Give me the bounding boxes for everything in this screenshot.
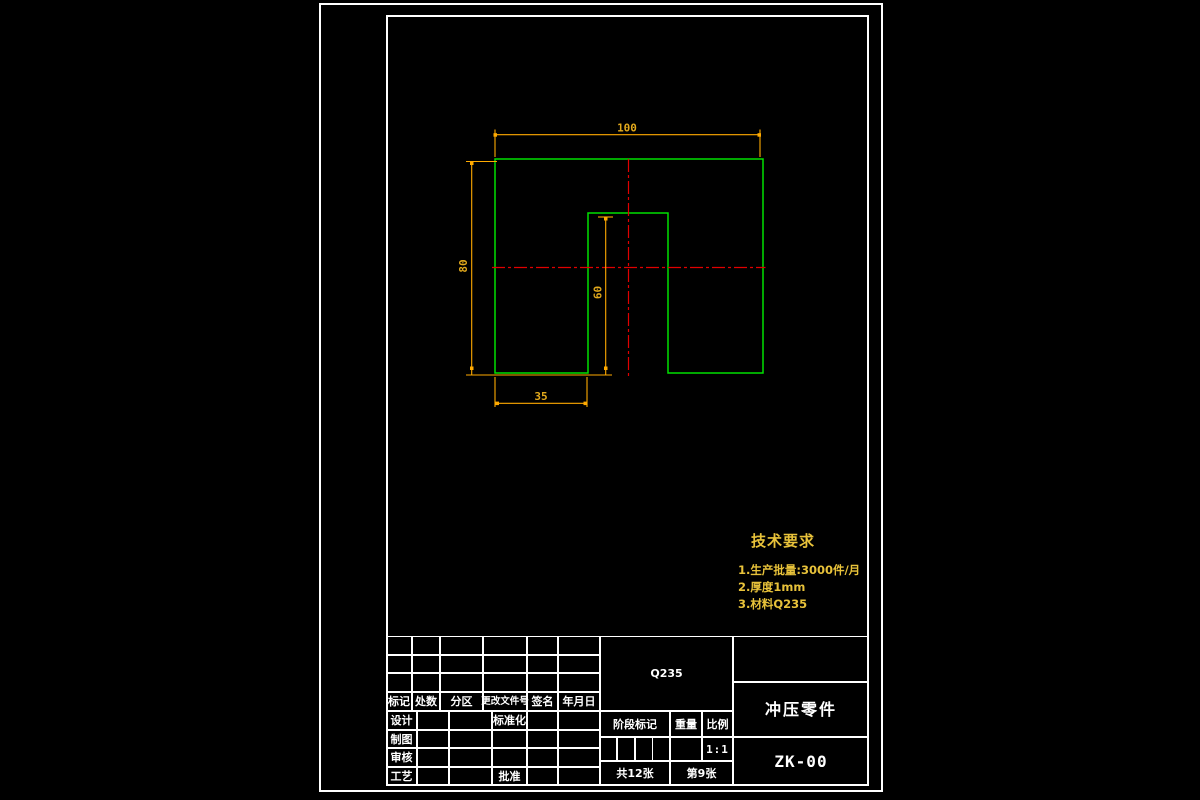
technical-requirements-title: 技术要求 bbox=[751, 530, 815, 551]
signature-cell bbox=[558, 767, 600, 786]
signature-cell bbox=[527, 767, 558, 786]
scale-value-cell: 1:1 bbox=[702, 737, 733, 761]
stage-mark-sub-cell bbox=[635, 737, 653, 761]
signature-cell bbox=[449, 767, 492, 786]
revision-cell bbox=[558, 655, 600, 673]
signature-cell bbox=[558, 730, 600, 748]
label-cell: 审核 bbox=[386, 748, 417, 767]
signature-cell bbox=[417, 711, 449, 730]
dim-label-overall-height: 80 bbox=[457, 259, 470, 272]
revision-cell bbox=[440, 655, 483, 673]
signature-cell bbox=[492, 748, 527, 767]
scale-cell: 比例 bbox=[702, 711, 733, 737]
signature-cell bbox=[449, 748, 492, 767]
revision-cell bbox=[412, 655, 440, 673]
signature-cell bbox=[527, 711, 558, 730]
signature-cell bbox=[417, 730, 449, 748]
signature-cell bbox=[527, 730, 558, 748]
signature-cell bbox=[492, 730, 527, 748]
revision-cell bbox=[412, 636, 440, 655]
label-cell: 批准 bbox=[492, 767, 527, 786]
signature-cell bbox=[449, 711, 492, 730]
revision-cell bbox=[558, 636, 600, 655]
dim-label-notch-offset: 35 bbox=[534, 390, 547, 403]
label-cell: 工艺 bbox=[386, 767, 417, 786]
revision-cell bbox=[386, 655, 412, 673]
revision-cell bbox=[483, 636, 527, 655]
revision-cell bbox=[386, 636, 412, 655]
cad-drawing-canvas: 100 80 60 35 技术要求 1.生产批量:3000件/月 2.厚度1mm… bbox=[0, 0, 1200, 800]
dim-label-notch-height: 60 bbox=[592, 286, 605, 299]
stage-mark-cell: 阶段标记 bbox=[600, 711, 670, 737]
header-cell: 更改文件号 bbox=[483, 692, 527, 711]
material-cell: Q235 bbox=[600, 636, 733, 711]
signature-cell bbox=[558, 711, 600, 730]
stage-mark-sub-cell bbox=[617, 737, 635, 761]
header-cell: 处数 bbox=[412, 692, 440, 711]
revision-cell bbox=[558, 673, 600, 692]
header-cell: 签名 bbox=[527, 692, 558, 711]
revision-cell bbox=[527, 636, 558, 655]
signature-cell bbox=[417, 748, 449, 767]
header-cell: 年月日 bbox=[558, 692, 600, 711]
sheets-total-cell: 共12张 bbox=[600, 761, 670, 786]
label-cell: 制图 bbox=[386, 730, 417, 748]
dim-label-overall-width: 100 bbox=[617, 122, 637, 135]
revision-cell bbox=[440, 673, 483, 692]
revision-cell bbox=[483, 655, 527, 673]
header-cell: 分区 bbox=[440, 692, 483, 711]
header-cell: 标记 bbox=[386, 692, 412, 711]
tech-requirement-item: 3.材料Q235 bbox=[738, 596, 860, 613]
signature-cell bbox=[449, 730, 492, 748]
revision-cell bbox=[412, 673, 440, 692]
part-name-cell: 冲压零件 bbox=[733, 682, 869, 737]
signature-cell bbox=[417, 767, 449, 786]
drawing-number-cell: ZK-00 bbox=[733, 737, 869, 786]
revision-cell bbox=[483, 673, 527, 692]
revision-cell bbox=[527, 655, 558, 673]
revision-cell bbox=[386, 673, 412, 692]
signature-cell bbox=[558, 748, 600, 767]
weight-cell: 重量 bbox=[670, 711, 702, 737]
revision-cell bbox=[440, 636, 483, 655]
revision-cell bbox=[527, 673, 558, 692]
stage-mark-sub-cell bbox=[652, 737, 670, 761]
company-cell bbox=[733, 636, 869, 682]
label-cell: 设计 bbox=[386, 711, 417, 730]
sheet-number-cell: 第9张 bbox=[670, 761, 733, 786]
signature-cell bbox=[527, 748, 558, 767]
stage-mark-sub-cell bbox=[600, 737, 617, 761]
weight-value-cell bbox=[670, 737, 702, 761]
dimension-overall-height bbox=[466, 162, 612, 376]
tech-requirement-item: 1.生产批量:3000件/月 bbox=[738, 562, 860, 579]
tech-requirement-item: 2.厚度1mm bbox=[738, 579, 860, 596]
label-cell: 标准化 bbox=[492, 711, 527, 730]
